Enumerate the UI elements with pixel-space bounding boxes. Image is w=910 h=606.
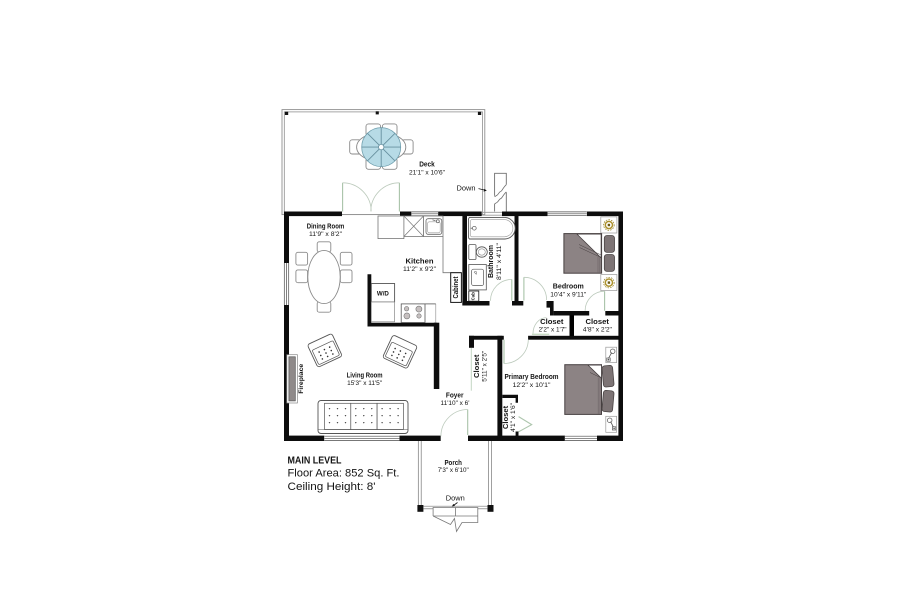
svg-text:7'3" x 6'10": 7'3" x 6'10" xyxy=(438,467,470,474)
svg-text:Deck: Deck xyxy=(419,160,435,169)
svg-text:Cabinet: Cabinet xyxy=(453,276,460,299)
svg-text:2'2" x 1'7": 2'2" x 1'7" xyxy=(539,326,568,333)
svg-text:Closet: Closet xyxy=(586,317,610,326)
svg-text:Floor Area: 852 Sq. Ft.: Floor Area: 852 Sq. Ft. xyxy=(288,467,400,479)
svg-text:11'10" x 6': 11'10" x 6' xyxy=(441,400,470,407)
svg-text:Ceiling Height: 8': Ceiling Height: 8' xyxy=(288,481,376,493)
svg-text:Foyer: Foyer xyxy=(446,390,464,399)
svg-text:11'2" x 9'2": 11'2" x 9'2" xyxy=(403,266,437,273)
svg-text:12'2" x 10'1": 12'2" x 10'1" xyxy=(513,382,552,389)
svg-text:Down: Down xyxy=(446,494,465,503)
svg-text:Primary Bedroom: Primary Bedroom xyxy=(505,372,559,381)
svg-text:10'4" x 9'11": 10'4" x 9'11" xyxy=(550,291,587,298)
svg-text:11'9" x 8'2": 11'9" x 8'2" xyxy=(309,231,343,238)
svg-text:Kitchen: Kitchen xyxy=(406,256,434,265)
svg-text:4'1" x 1'6": 4'1" x 1'6" xyxy=(510,403,517,432)
svg-text:Closet: Closet xyxy=(503,405,510,429)
svg-text:15'3" x 11'5": 15'3" x 11'5" xyxy=(347,380,383,387)
svg-text:Porch: Porch xyxy=(444,458,462,467)
svg-text:Living Room: Living Room xyxy=(347,370,383,379)
svg-text:Closet: Closet xyxy=(540,317,564,326)
svg-text:W/D: W/D xyxy=(377,290,390,297)
svg-text:8'11" x 4'11": 8'11" x 4'11" xyxy=(496,243,503,280)
svg-text:MAIN LEVEL: MAIN LEVEL xyxy=(288,455,342,466)
svg-text:Fireplace: Fireplace xyxy=(299,363,305,394)
svg-text:Cab: Cab xyxy=(471,292,476,301)
svg-text:5'11" x 2'5": 5'11" x 2'5" xyxy=(481,351,488,382)
svg-text:21'1" x 10'6": 21'1" x 10'6" xyxy=(409,170,446,177)
svg-text:Bathroom: Bathroom xyxy=(488,245,495,278)
svg-text:Closet: Closet xyxy=(474,354,481,378)
svg-text:4'8" x 2'2": 4'8" x 2'2" xyxy=(583,326,613,333)
svg-text:Dining Room: Dining Room xyxy=(307,222,345,231)
svg-text:Down: Down xyxy=(457,184,476,193)
svg-text:Bedroom: Bedroom xyxy=(553,282,584,291)
